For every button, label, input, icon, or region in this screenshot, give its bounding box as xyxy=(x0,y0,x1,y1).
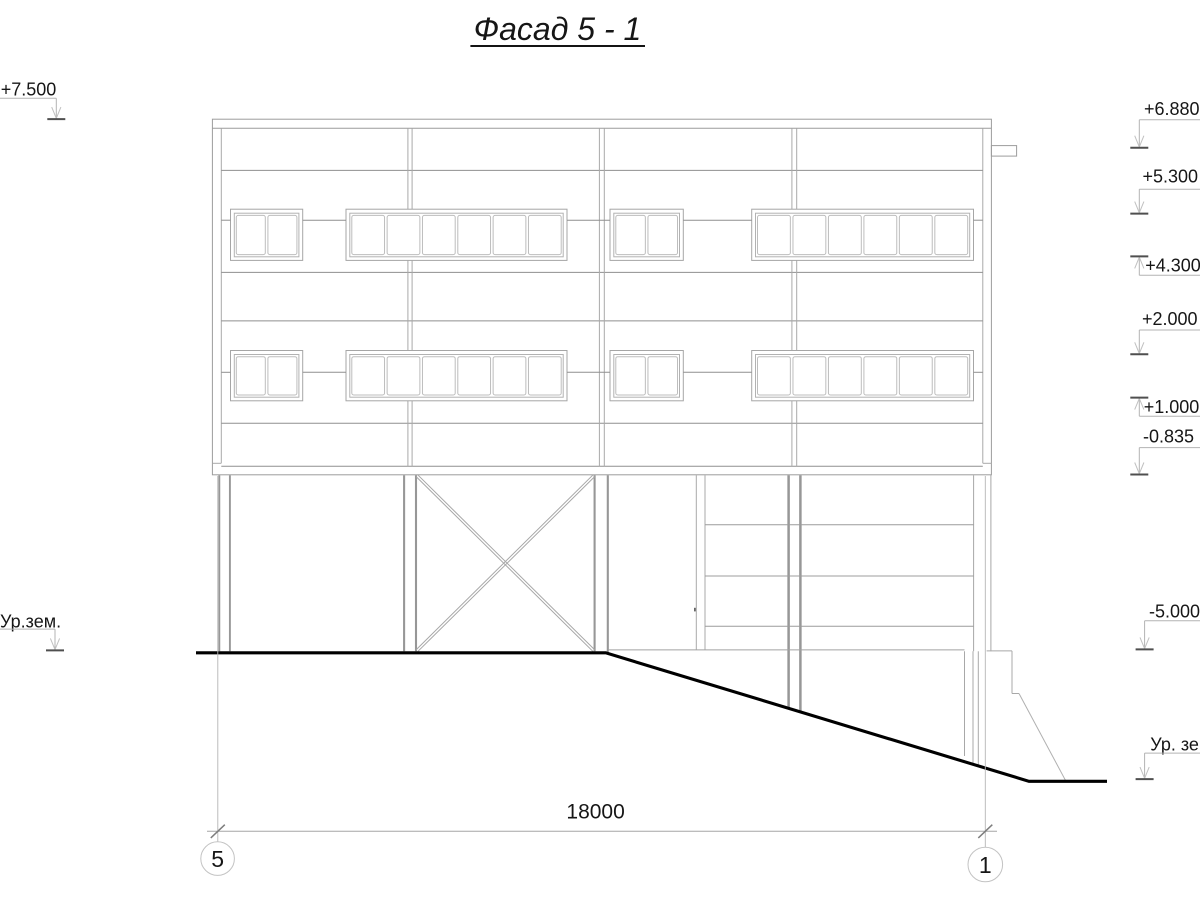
svg-text:18000: 18000 xyxy=(566,801,624,824)
svg-text:1: 1 xyxy=(979,852,992,878)
svg-text:Ур. зем.: Ур. зем. xyxy=(1150,734,1200,754)
svg-text:+2.000: +2.000 xyxy=(1142,309,1198,329)
svg-text:+5.300: +5.300 xyxy=(1143,166,1199,186)
svg-text:Фасад 5 - 1: Фасад 5 - 1 xyxy=(474,11,642,47)
svg-text:Ур.зем.: Ур.зем. xyxy=(0,611,61,631)
svg-text:+7.500: +7.500 xyxy=(1,79,57,99)
svg-text:-5.000: -5.000 xyxy=(1149,602,1200,622)
svg-text:+1.000: +1.000 xyxy=(1144,397,1200,417)
svg-text:-0.835: -0.835 xyxy=(1143,427,1194,447)
svg-text:+4.300: +4.300 xyxy=(1145,256,1200,276)
svg-text:+6.880: +6.880 xyxy=(1144,99,1200,119)
svg-text:5: 5 xyxy=(211,846,224,872)
